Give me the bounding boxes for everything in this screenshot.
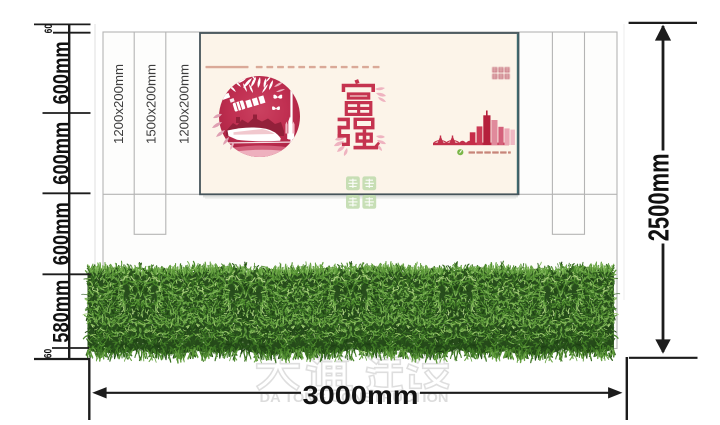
svg-text:60: 60	[43, 24, 55, 33]
svg-text:60: 60	[43, 349, 55, 359]
svg-text:600mm: 600mm	[49, 202, 74, 265]
svg-text:1200x200mm: 1200x200mm	[177, 64, 191, 144]
svg-text:580mm: 580mm	[49, 280, 74, 343]
svg-text:600mm: 600mm	[49, 41, 74, 104]
svg-text:1500x200mm: 1500x200mm	[144, 64, 158, 144]
svg-text:2500mm: 2500mm	[644, 153, 676, 241]
svg-text:600mm: 600mm	[49, 122, 74, 185]
svg-text:1200x200mm: 1200x200mm	[112, 64, 126, 144]
svg-text:3000mm: 3000mm	[303, 380, 419, 410]
